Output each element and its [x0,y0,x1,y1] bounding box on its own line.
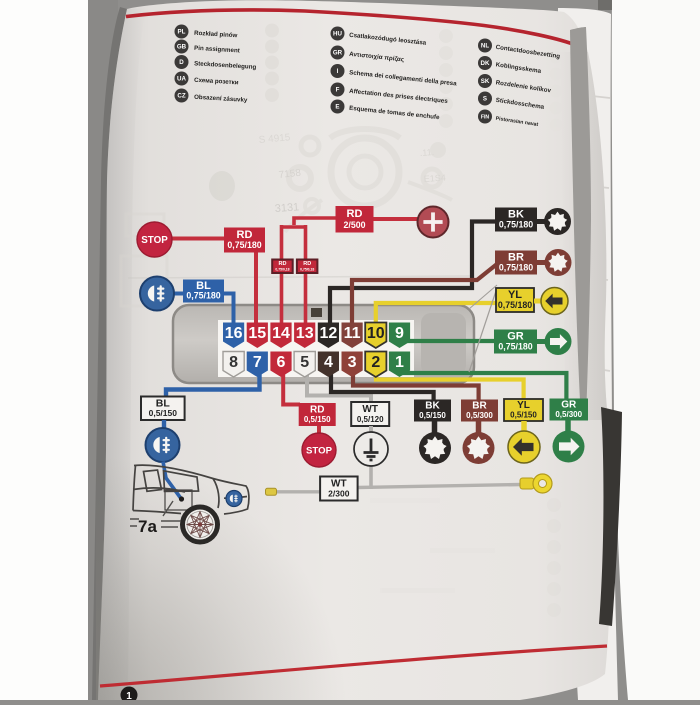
svg-text:CZ: CZ [177,93,185,100]
svg-text:16: 16 [225,325,243,342]
svg-text:GR: GR [333,50,343,57]
svg-text:RD: RD [347,208,363,220]
svg-text:0,75/0,18: 0,75/0,18 [300,268,314,272]
svg-text:WT: WT [362,404,378,415]
svg-text:0,75/180: 0,75/180 [227,240,261,250]
svg-text:0,75/180: 0,75/180 [498,300,532,310]
svg-text:1: 1 [395,354,404,371]
svg-text:RD: RD [303,261,311,267]
svg-text:STOP: STOP [141,235,168,246]
svg-text:3131: 3131 [274,201,299,215]
svg-text:I: I [337,68,339,75]
svg-text:2/500: 2/500 [343,220,365,230]
svg-text:0,75/180: 0,75/180 [499,219,533,229]
svg-text:15: 15 [248,325,266,342]
svg-text:10: 10 [367,325,385,342]
svg-text:S: S [483,96,487,103]
svg-text:DK: DK [481,60,490,67]
svg-text:D: D [179,59,184,66]
svg-text:4: 4 [324,354,333,371]
svg-text:7a: 7a [138,517,157,536]
svg-text:2: 2 [371,354,380,371]
svg-text:FIN: FIN [481,115,490,121]
svg-text:0,5/150: 0,5/150 [510,410,537,419]
svg-text:13: 13 [296,325,314,342]
svg-text:8: 8 [229,354,238,371]
svg-text:E1S4: E1S4 [423,172,446,184]
svg-text:F: F [336,87,340,94]
svg-text:11: 11 [344,325,361,342]
svg-text:UA: UA [177,76,186,83]
svg-text:0,75/180: 0,75/180 [498,341,532,351]
svg-text:0,5/150: 0,5/150 [304,415,331,424]
svg-text:5: 5 [300,354,309,371]
svg-text:3: 3 [348,354,357,371]
svg-text:E: E [335,104,339,111]
svg-text:0,5/150: 0,5/150 [419,411,446,420]
svg-text:.11.: .11. [419,147,434,158]
svg-text:12: 12 [320,325,338,342]
svg-text:PL: PL [178,29,186,36]
svg-text:0,75/180: 0,75/180 [186,291,220,301]
svg-text:1: 1 [126,691,132,700]
svg-text:RD: RD [310,405,324,416]
svg-text:0,5/300: 0,5/300 [466,411,493,420]
svg-text:0,75/0,18: 0,75/0,18 [275,268,289,272]
svg-text:2/300: 2/300 [328,488,350,498]
svg-text:SK: SK [481,78,490,85]
svg-text:0,75/180: 0,75/180 [499,262,533,272]
svg-text:0,5/150: 0,5/150 [149,408,178,418]
svg-text:6: 6 [277,354,286,371]
svg-text:RD: RD [237,229,253,241]
svg-text:GB: GB [177,44,187,51]
svg-text:STOP: STOP [306,446,333,457]
svg-text:7: 7 [253,354,262,371]
svg-text:NL: NL [481,43,489,50]
svg-text:HU: HU [333,31,342,38]
svg-text:0,5/300: 0,5/300 [555,410,582,419]
svg-text:9: 9 [395,325,404,342]
svg-text:14: 14 [272,325,290,342]
svg-text:RD: RD [279,261,287,267]
svg-text:0,5/120: 0,5/120 [357,415,384,424]
